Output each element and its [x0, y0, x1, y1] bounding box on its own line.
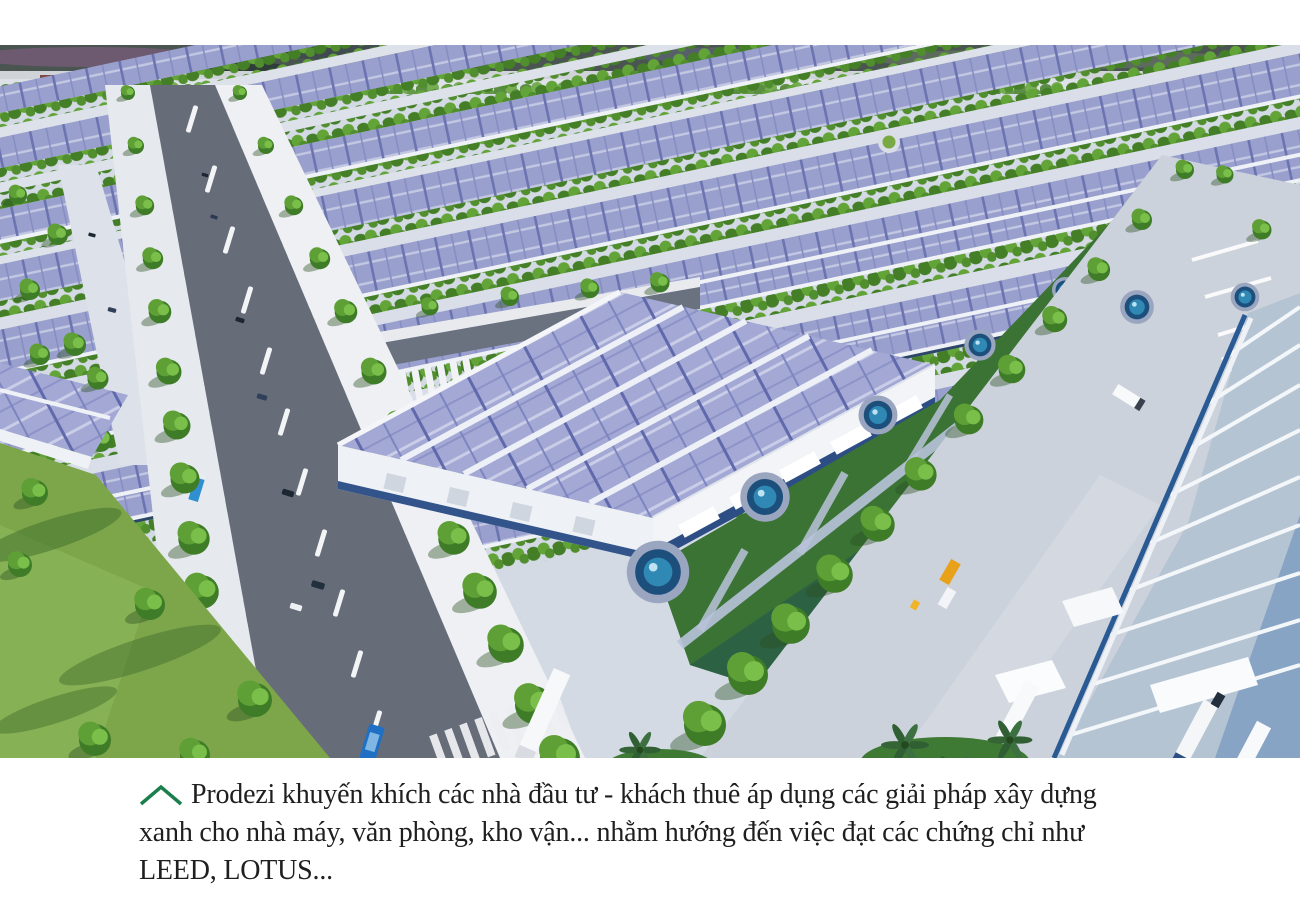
caption-line-1: Prodezi khuyến khích các nhà đầu tư - kh… [191, 776, 1097, 814]
fountain [627, 541, 689, 603]
article-figure: Prodezi khuyến khích các nhà đầu tư - kh… [0, 0, 1300, 906]
industrial-park-rendering [0, 45, 1300, 758]
caption: Prodezi khuyến khích các nhà đầu tư - kh… [139, 776, 1097, 890]
chevron-up-icon [139, 784, 183, 806]
caption-line-3: LEED, LOTUS... [139, 852, 1097, 890]
roundabout [878, 131, 900, 153]
caption-line-2: xanh cho nhà máy, văn phòng, kho vận... … [139, 814, 1097, 852]
